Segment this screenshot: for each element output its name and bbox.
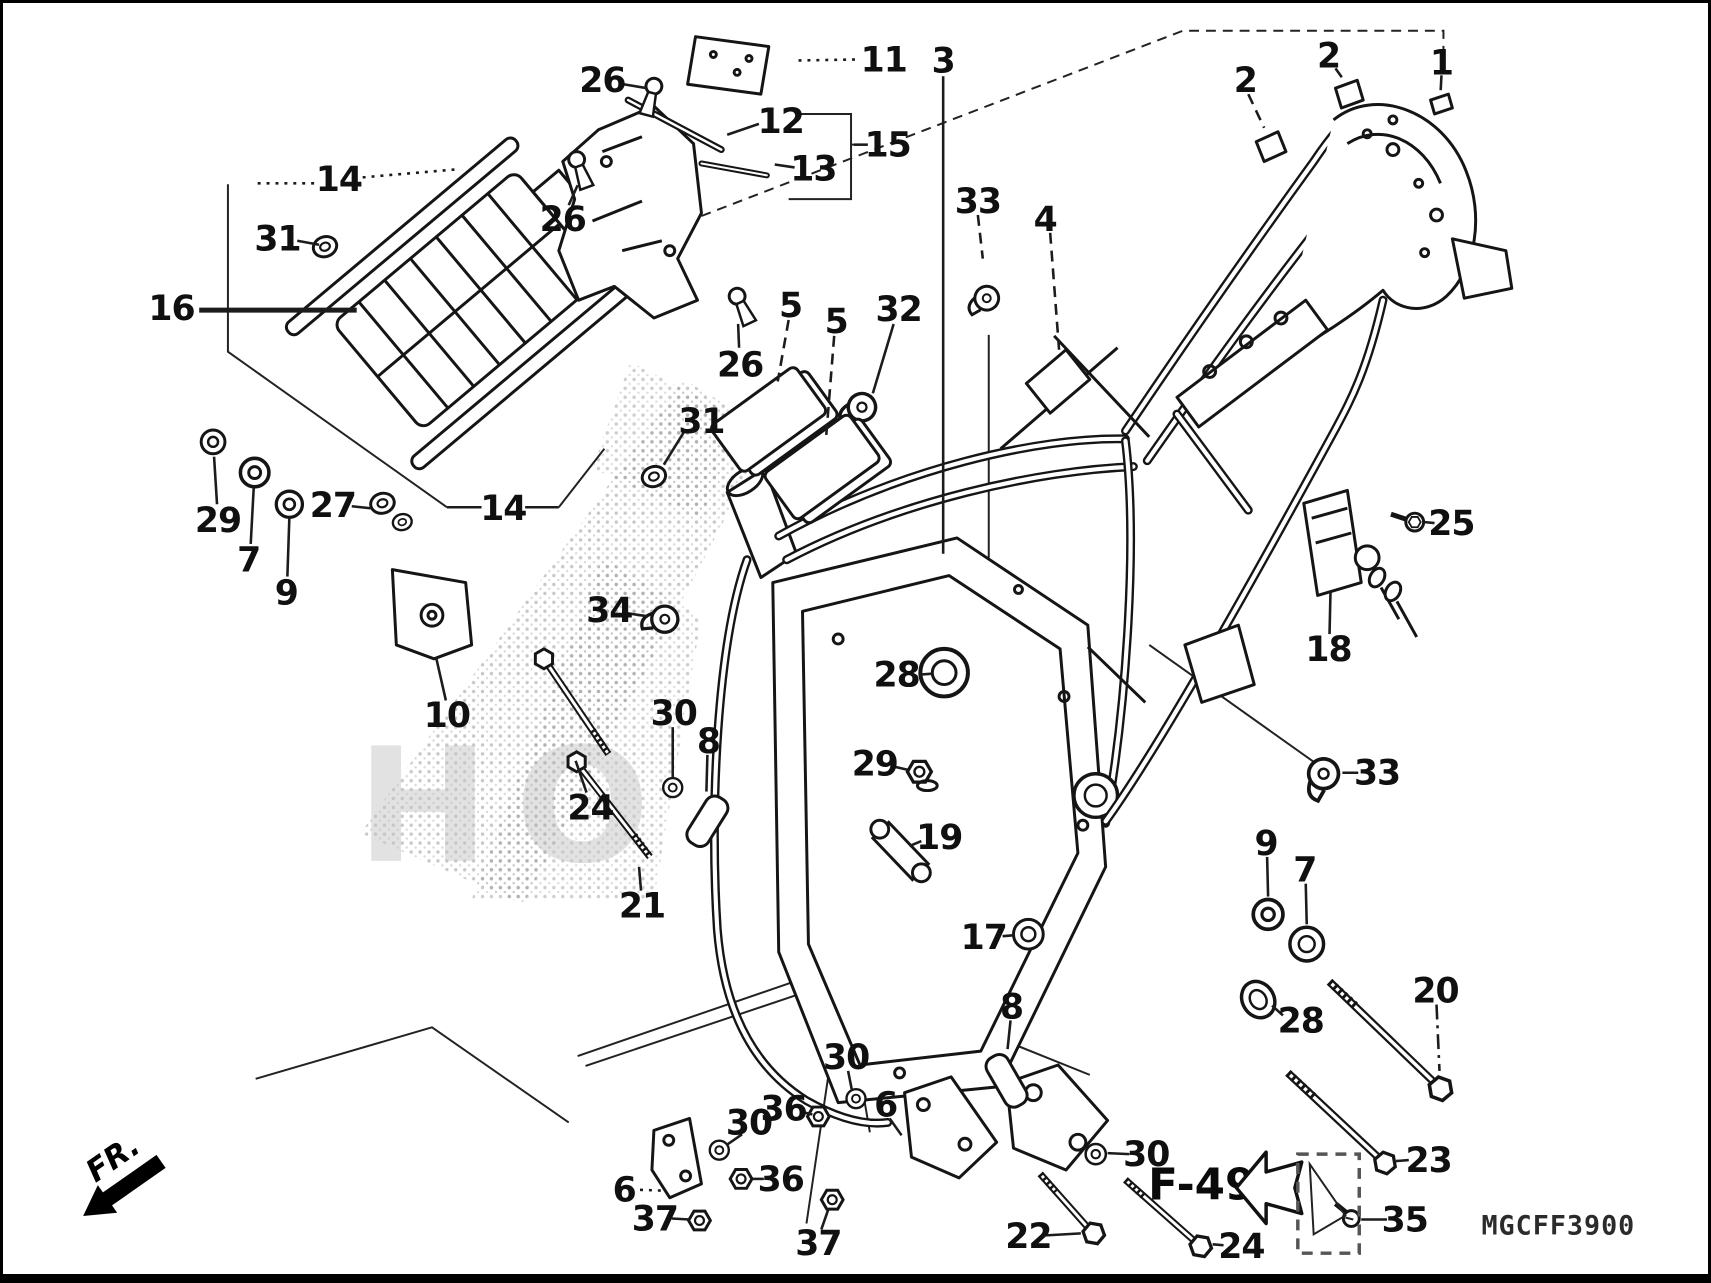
part-ring-28a [920,649,968,697]
callout-30: 30 [1108,1135,1170,1175]
callout-number-21: 21 [619,886,665,926]
callout-22: 22 [1005,1217,1081,1257]
callout-number-7: 7 [237,541,260,581]
part-grommet-27a [368,491,396,516]
callout-number-37: 37 [795,1224,841,1264]
callout-3: 3 [932,41,955,553]
callout-number-30: 30 [1123,1135,1169,1175]
callout-number-31: 31 [678,402,724,442]
watermark-letters: HO [357,715,676,899]
callout-number-26: 26 [579,61,625,101]
callout-27: 27 [310,486,371,526]
callout-14: 14 [258,160,456,200]
footpeg-bracket [1185,625,1254,702]
frame-parts-diagram: HO [3,3,1708,1274]
callout-number-30: 30 [823,1038,869,1078]
callout-number-34: 34 [586,591,632,631]
part-washer-30d [663,778,682,797]
part-grommet-31a [310,233,339,260]
callout-23: 23 [1396,1141,1452,1181]
part-bolt-23 [1288,1073,1399,1176]
callout-number-33: 33 [1354,754,1400,794]
callout-33: 33 [955,182,1001,259]
part-washer-1 [1431,94,1453,114]
callout-number-15: 15 [865,126,911,166]
callout-17: 17 [961,918,1015,958]
callout-4: 4 [1034,200,1059,350]
callout-7: 7 [1293,851,1316,925]
callout-1: 1 [1430,43,1453,94]
callout-number-14: 14 [480,489,526,529]
callout-number-24: 24 [567,788,613,828]
callout-number-25: 25 [1428,504,1474,544]
tail-bracket [1452,239,1511,298]
callout-26: 26 [717,324,763,386]
callout-number-7: 7 [1293,851,1316,891]
part-clamp-33b [1302,756,1345,803]
part-bolt-25 [1391,513,1424,531]
callout-number-22: 22 [1005,1217,1051,1257]
callout-number-6: 6 [874,1085,897,1125]
part-plate-6b [652,1118,702,1197]
callout-11: 11 [799,40,907,80]
callout-number-24: 24 [1218,1227,1264,1267]
part-grommet-27b [391,512,413,532]
callout-number-31: 31 [254,220,300,260]
callout-number-8: 8 [1000,987,1023,1027]
part-plate-11 [688,37,769,94]
callout-number-4: 4 [1034,200,1057,240]
callout-number-27: 27 [310,486,356,526]
callout-24: 24 [1213,1227,1265,1267]
callout-number-10: 10 [424,696,470,736]
callout-number-30: 30 [651,694,697,734]
part-code: MGCFF3900 [1481,1210,1635,1241]
part-washer-7a [240,458,269,487]
part-collar-8b [683,792,732,850]
callout-36: 36 [753,1160,804,1200]
part-plate-6a [905,1077,997,1178]
callout-number-17: 17 [961,918,1007,958]
callout-29: 29 [195,457,241,541]
callout-number-9: 9 [1255,824,1278,864]
part-washer-7b [1290,927,1324,961]
part-plate-2a [1256,132,1286,162]
part-washer-30c [1086,1144,1106,1164]
callout-number-26: 26 [540,200,586,240]
callout-number-26: 26 [717,345,763,385]
callout-number-1: 1 [1430,43,1453,83]
parts-diagram-page: HO [0,0,1711,1283]
callout-26: 26 [579,61,647,101]
callout-14: 14 [447,489,559,529]
callout-28: 28 [1272,1001,1324,1041]
callout-10: 10 [424,657,470,736]
part-bush-9b [1253,900,1283,930]
callout-number-20: 20 [1412,972,1458,1012]
callout-2: 2 [1317,36,1345,82]
part-ring-28b [1235,975,1281,1023]
callout-number-9: 9 [275,573,298,613]
part-lock-18 [1304,490,1417,637]
callout-number-35: 35 [1382,1200,1428,1240]
part-pad-4 [1026,350,1089,413]
part-washer-29a [201,430,225,454]
part-nut-37b [821,1190,843,1209]
part-washer-30b [710,1141,729,1160]
part-bolt-26c [727,286,757,327]
part-washer-30a [846,1089,865,1108]
part-nut-36b [730,1169,752,1188]
callout-number-29: 29 [195,501,241,541]
part-nut-36a [807,1107,829,1126]
part-bush-9a [276,491,302,517]
part-rod-13 [701,163,766,175]
callout-number-28: 28 [1278,1001,1324,1041]
callout-20: 20 [1412,972,1458,1071]
callout-37: 37 [632,1199,690,1239]
callout-number-32: 32 [875,290,921,330]
callout-number-30: 30 [726,1103,772,1143]
callout-32: 32 [873,290,922,393]
callout-number-37: 37 [632,1199,678,1239]
callout-18: 18 [1305,591,1351,669]
callout-number-11: 11 [861,40,907,80]
callout-number-14: 14 [316,160,362,200]
part-nut-37a [689,1211,711,1230]
callout-number-2: 2 [1234,61,1257,101]
callout-9: 9 [275,518,298,613]
callout-number-5: 5 [825,302,848,342]
callout-number-29: 29 [852,745,898,785]
callout-19: 19 [909,818,962,858]
part-bush-17 [1014,919,1044,949]
callout-number-36: 36 [758,1160,804,1200]
callout-number-19: 19 [916,818,962,858]
callout-30: 30 [726,1103,772,1145]
detail-box [1298,1154,1359,1253]
callout-15: 15 [854,126,911,166]
callout-37: 37 [795,1210,841,1265]
callout-number-23: 23 [1405,1141,1451,1181]
callout-number-8: 8 [697,722,720,762]
callout-number-13: 13 [790,149,836,189]
part-clamp-33a [967,283,1001,321]
callout-12: 12 [727,102,804,142]
callout-number-16: 16 [148,289,194,329]
callout-number-12: 12 [758,102,804,142]
callout-number-2: 2 [1317,36,1340,76]
part-plate-2b [1335,80,1363,108]
frame-main [714,105,1511,1170]
callout-9: 9 [1255,824,1278,897]
front-direction: FR. [56,1122,171,1230]
callout-25: 25 [1425,504,1475,544]
callout-number-18: 18 [1305,630,1351,670]
callout-number-5: 5 [779,286,802,326]
callout-35: 35 [1361,1200,1428,1240]
callout-2: 2 [1234,61,1264,128]
callout-number-33: 33 [955,182,1001,222]
callout-number-3: 3 [932,41,955,81]
callout-31: 31 [254,220,319,260]
part-bracket-10 [392,570,471,659]
callout-number-28: 28 [873,656,919,696]
callout-33: 33 [1342,754,1400,794]
